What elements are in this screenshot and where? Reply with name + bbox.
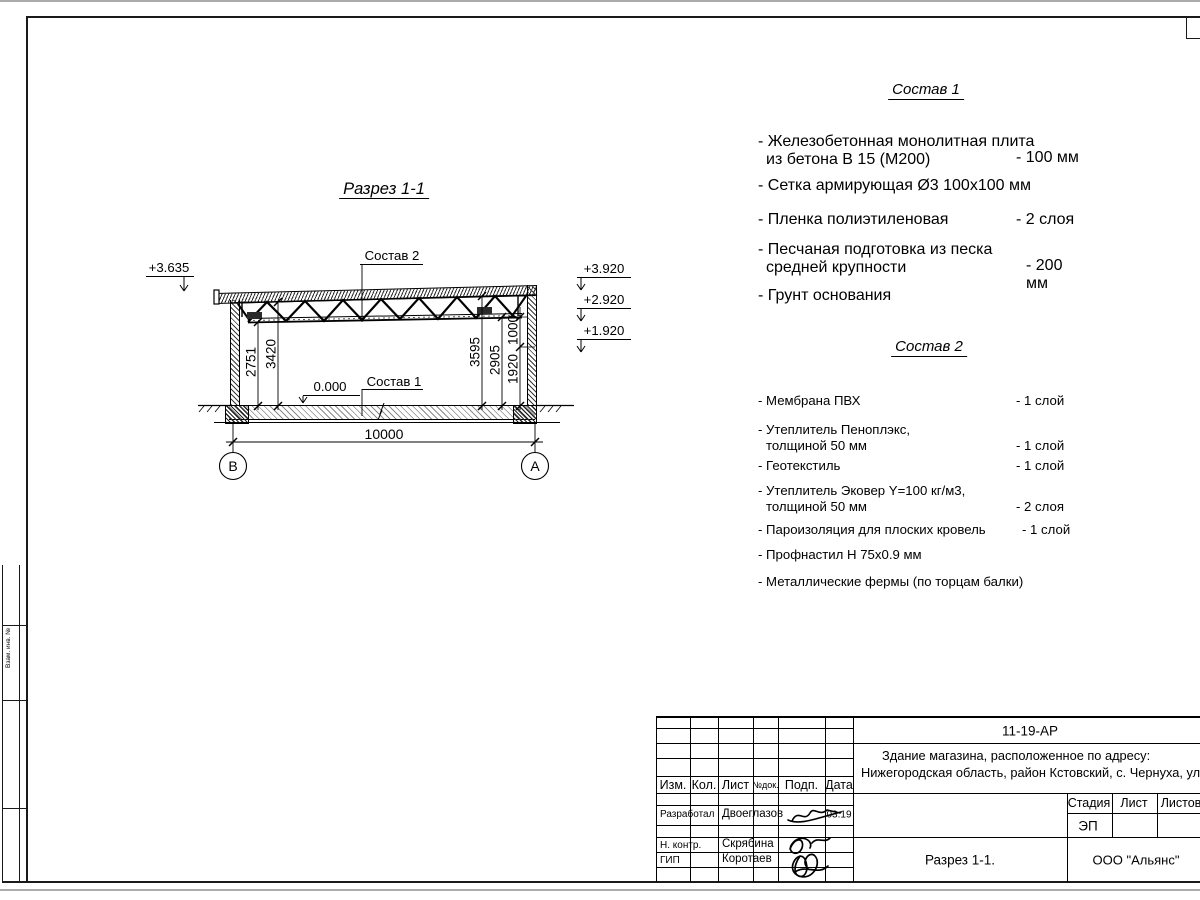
role-developer: Разработал (660, 809, 714, 820)
elevation-mark-r3 (577, 340, 631, 353)
role-ncontrol: Н. контр. (660, 840, 701, 851)
drawing-sheet: { "section": { "title": "Разрез 1-1", "l… (0, 0, 1200, 900)
elevation-r2-value: +2.920 (584, 292, 625, 308)
sostav1-title: Состав 1 (888, 82, 964, 100)
item-value: - 100 мм (1016, 149, 1079, 167)
role-gip: ГИП (660, 855, 680, 866)
item-value: - 2 слоя (1016, 211, 1074, 229)
doc-code: 11-19-АР (1002, 724, 1058, 739)
label-sostav2: Состав 2 (365, 248, 420, 264)
project-name-line1: Здание магазина, расположенное по адресу… (882, 748, 1150, 763)
sheets-label: Листов (1161, 796, 1200, 810)
list-item: - Утеплитель Эковер Y=100 кг/м3, толщино… (758, 483, 1098, 515)
label-sostav1: Состав 1 (367, 374, 422, 390)
elevation-mark-left (146, 277, 194, 292)
list-item: - Железобетонная монолитная плита из бет… (758, 133, 1088, 169)
item-value: - 1 слой (1016, 438, 1064, 454)
dim-2751: 2751 (244, 347, 259, 377)
leader-sostav1 (362, 389, 423, 416)
list-item: - Пленка полиэтиленовая - 2 слоя (758, 211, 1088, 229)
axis-label-right: А (530, 458, 539, 474)
sheet-title: Разрез 1-1. (925, 853, 995, 868)
dim-3595: 3595 (468, 337, 483, 367)
name-ncontrol: Скрябина (722, 838, 774, 850)
zero-level-marker (299, 396, 360, 404)
list-item: - Грунт основания (758, 287, 1088, 305)
elevation-left-value: +3.635 (149, 260, 190, 276)
item-value: - 1 слой (1016, 393, 1064, 409)
dim-1920: 1920 (506, 354, 521, 384)
item-value: - 1 слой (1016, 458, 1064, 474)
elevation-mark-r2 (577, 309, 631, 322)
name-gip: Коротаев (722, 853, 772, 865)
stage-value: ЭП (1078, 819, 1097, 834)
break-mark (378, 403, 384, 420)
col-data: Дата (825, 778, 853, 792)
elevation-r1-value: +3.920 (584, 261, 625, 277)
col-list: Лист (722, 778, 749, 792)
list-item: - Мембрана ПВХ - 1 слой (758, 393, 1098, 409)
roof-end-plate (214, 290, 219, 304)
name-developer: Двоеглазов (722, 808, 783, 820)
dim-span: 10000 (365, 426, 404, 442)
col-kol: Кол. (692, 778, 717, 792)
list-item: - Профнастил Н 75х0.9 мм (758, 547, 1098, 563)
sheet-label: Лист (1120, 796, 1147, 810)
item-value: - 2 слоя (1016, 499, 1064, 515)
col-podp: Подп. (785, 778, 818, 792)
axis-bubbles (220, 453, 549, 480)
date-developer: 03.19 (826, 810, 851, 821)
dim-2905: 2905 (488, 345, 503, 375)
dim-3420: 3420 (264, 339, 279, 369)
col-izm: Изм. (660, 778, 687, 792)
zero-level-value: 0.000 (313, 379, 346, 395)
axis-label-left: В (228, 458, 237, 474)
company-name: ООО "Альянс" (1093, 853, 1180, 868)
list-item: - Пароизоляция для плоских кровель - 1 с… (758, 522, 1098, 538)
col-ndok: №док. (752, 780, 778, 790)
list-item: - Металлические фермы (по торцам балки) (758, 574, 1098, 590)
item-value: - 1 слой (1022, 522, 1070, 538)
dim-1000: 1000 (506, 315, 521, 345)
list-item: - Утеплитель Пеноплэкс, толщиной 50 мм -… (758, 422, 1098, 454)
stage-label: Стадия (1068, 796, 1111, 810)
list-item: - Геотекстиль - 1 слой (758, 458, 1098, 474)
project-name-line2: Нижегородская область, район Кстовский, … (861, 765, 1200, 780)
elevation-mark-r1 (577, 278, 631, 291)
list-item: - Песчаная подготовка из песка средней к… (758, 241, 1088, 277)
sostav2-title: Состав 2 (891, 339, 967, 357)
elevation-r3-value: +1.920 (584, 323, 625, 339)
roof-truss (231, 295, 535, 323)
list-item: - Сетка армирующая Ø3 100х100 мм (758, 177, 1088, 195)
